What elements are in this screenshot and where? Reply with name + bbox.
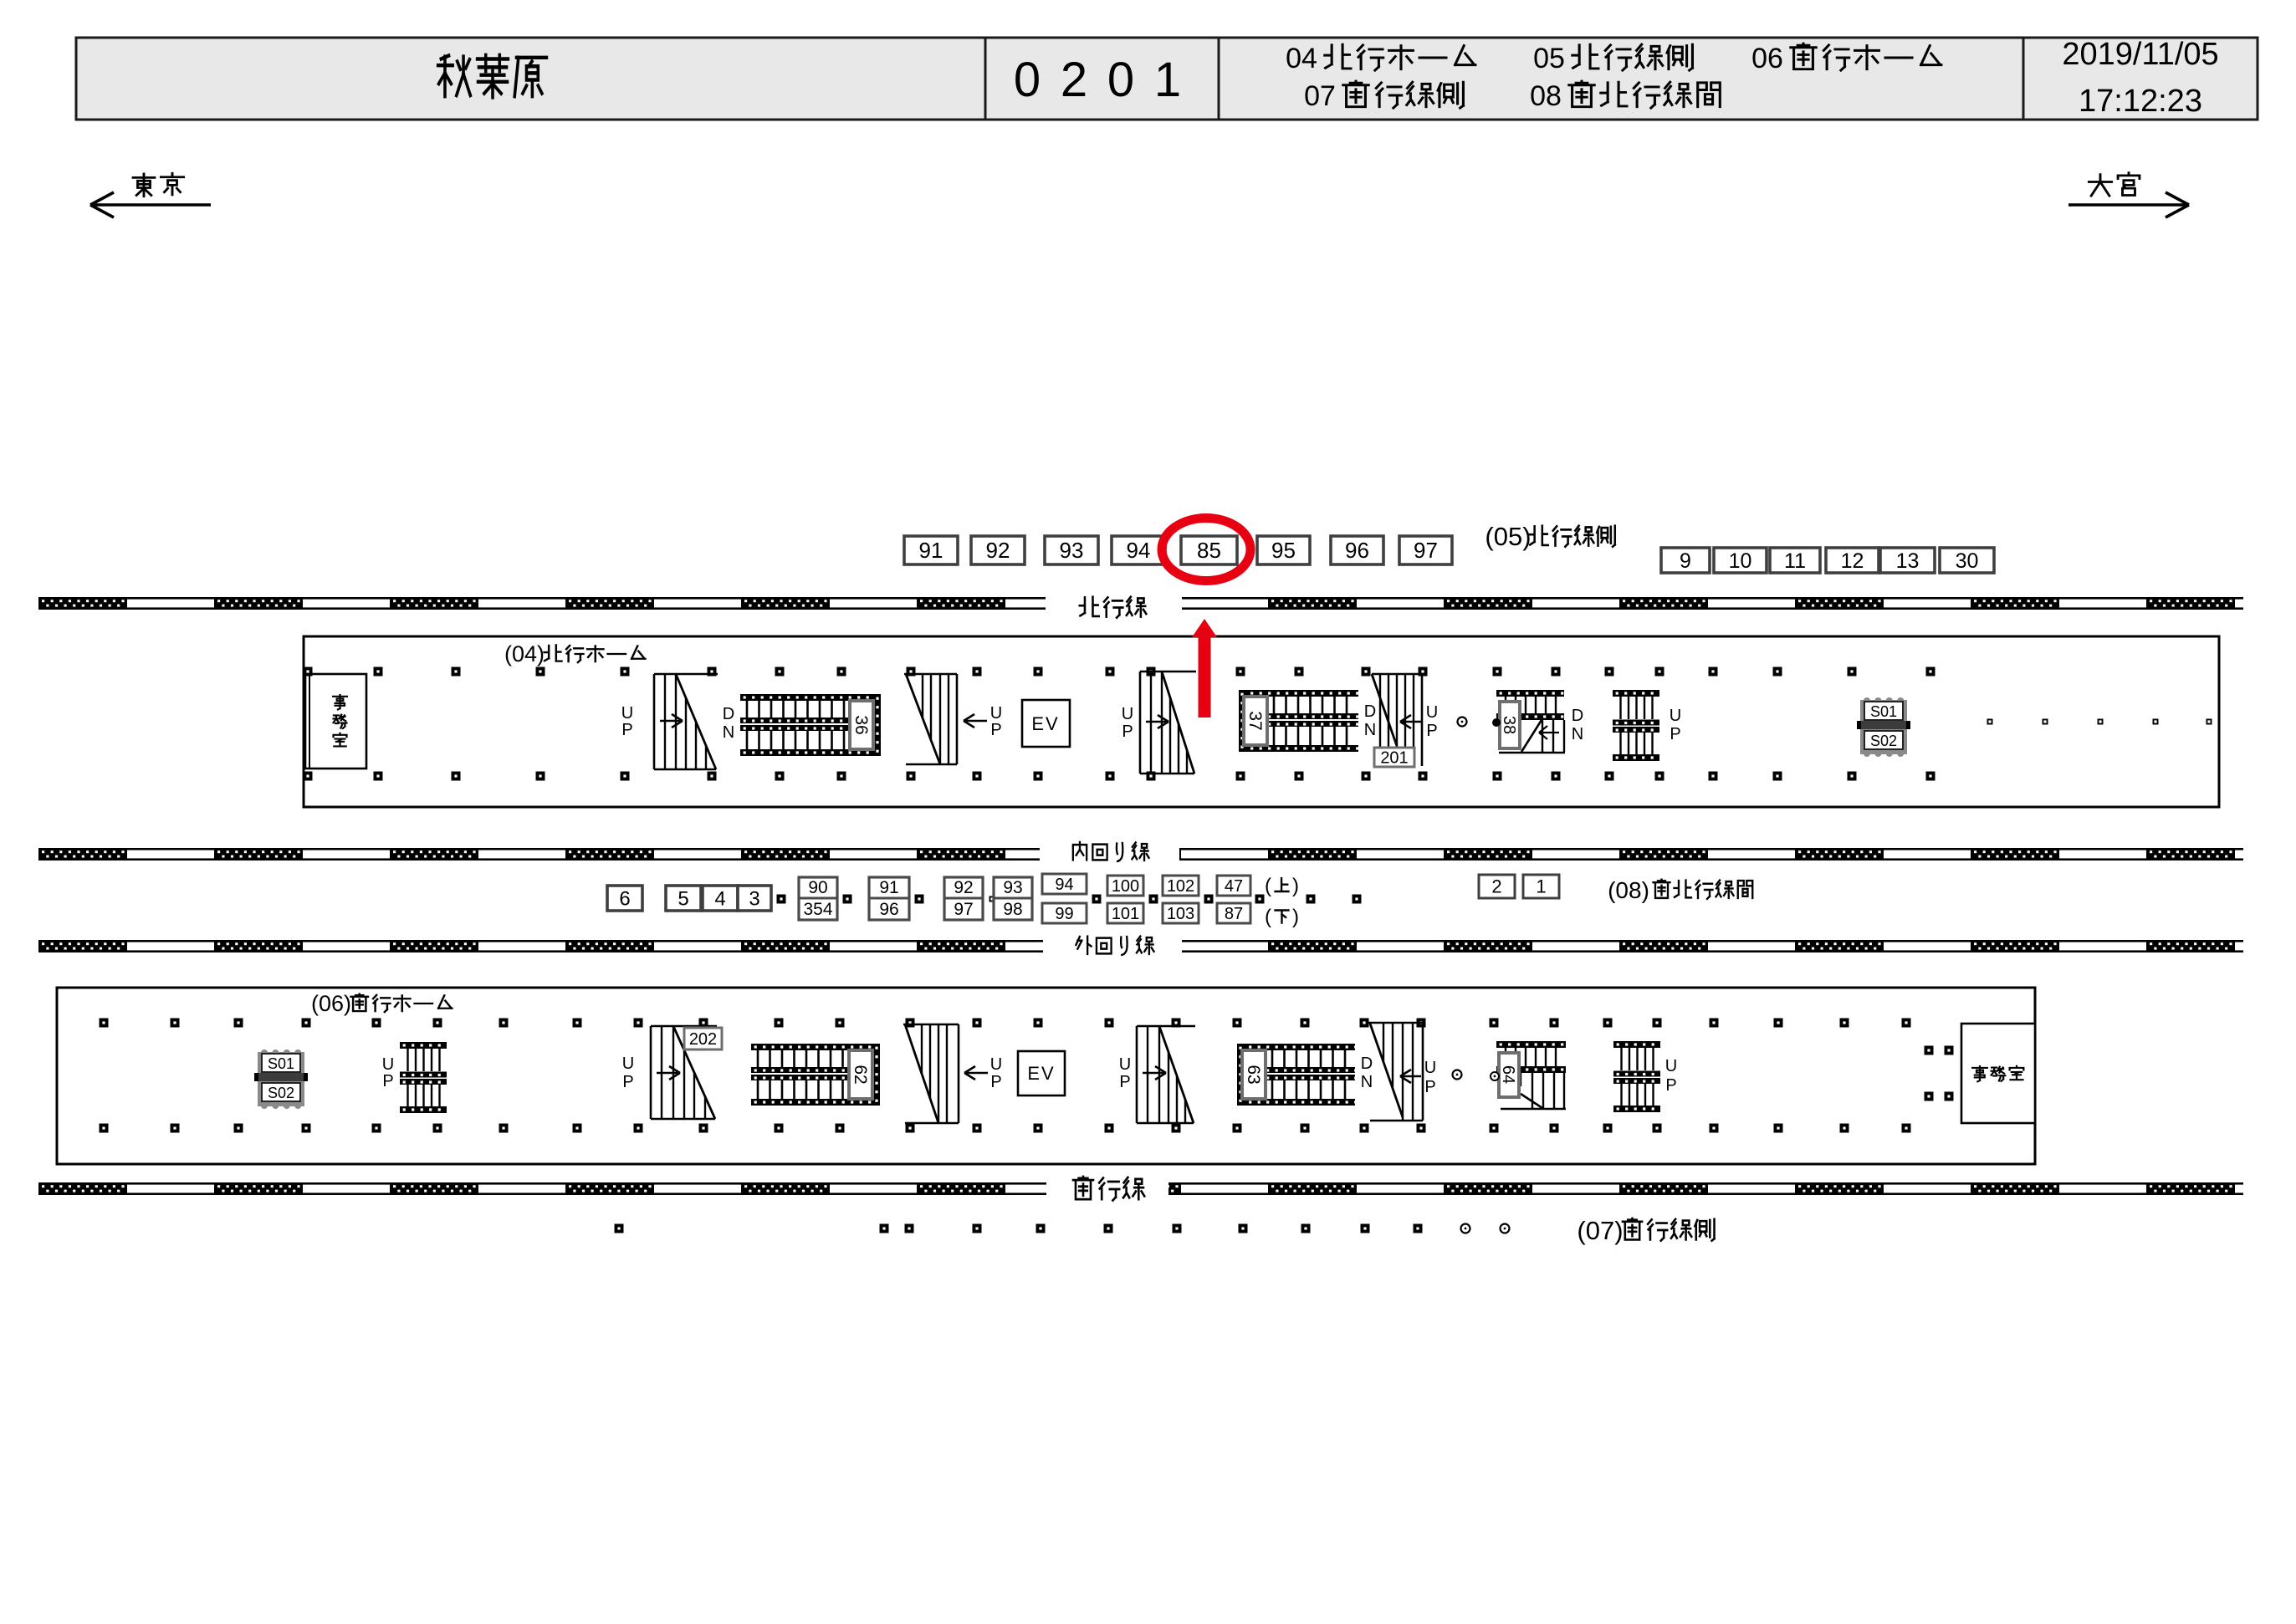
svg-text:07: 07: [1304, 80, 1336, 112]
svg-text:U: U: [1670, 707, 1681, 725]
svg-text:1: 1: [1154, 53, 1181, 107]
svg-text:): ): [1292, 906, 1299, 928]
svg-text:99: 99: [1055, 905, 1073, 923]
svg-text:6: 6: [619, 887, 630, 910]
svg-text:3: 3: [749, 887, 759, 910]
svg-text:(: (: [1265, 875, 1271, 897]
svg-text:06: 06: [1751, 43, 1783, 74]
svg-text:P: P: [1426, 722, 1437, 740]
svg-text:05: 05: [1533, 43, 1565, 74]
svg-text:(07): (07): [1577, 1216, 1623, 1245]
svg-text:(06): (06): [311, 991, 351, 1016]
svg-text:62: 62: [851, 1065, 870, 1084]
svg-text:U: U: [621, 704, 633, 723]
svg-text:EV: EV: [1027, 1063, 1055, 1084]
svg-text:9: 9: [1680, 549, 1691, 573]
svg-text:U: U: [1426, 703, 1438, 722]
svg-text:13: 13: [1896, 549, 1920, 573]
svg-text:2: 2: [1491, 876, 1501, 897]
svg-text:5: 5: [678, 887, 688, 910]
svg-text:U: U: [990, 704, 1002, 723]
svg-text:97: 97: [954, 900, 973, 919]
svg-text:D: D: [1364, 702, 1376, 721]
svg-text:S02: S02: [268, 1085, 294, 1101]
svg-text:2019/11/05: 2019/11/05: [2062, 37, 2218, 72]
svg-text:47: 47: [1225, 877, 1243, 896]
svg-text:P: P: [382, 1072, 393, 1090]
svg-text:P: P: [622, 1073, 633, 1091]
svg-text:0: 0: [1107, 53, 1134, 107]
svg-text:11: 11: [1784, 549, 1806, 573]
svg-text:202: 202: [689, 1030, 717, 1049]
svg-text:37: 37: [1245, 711, 1265, 730]
svg-text:P: P: [1424, 1078, 1435, 1096]
svg-text:(: (: [1265, 906, 1271, 928]
svg-text:P: P: [1119, 1073, 1130, 1091]
svg-text:91: 91: [879, 878, 898, 897]
svg-text:354: 354: [803, 900, 832, 919]
svg-text:(08): (08): [1608, 877, 1649, 903]
svg-text:12: 12: [1841, 549, 1864, 573]
svg-text:S01: S01: [1870, 703, 1897, 720]
svg-text:N: N: [1572, 725, 1583, 743]
svg-text:D: D: [1572, 707, 1583, 725]
svg-text:(04): (04): [504, 641, 545, 666]
svg-text:38: 38: [1500, 716, 1518, 734]
svg-text:N: N: [1361, 1073, 1373, 1091]
svg-text:87: 87: [1225, 905, 1243, 923]
svg-text:(05): (05): [1485, 522, 1531, 551]
svg-text:64: 64: [1499, 1065, 1517, 1084]
svg-text:P: P: [990, 1073, 1001, 1091]
svg-text:P: P: [1665, 1076, 1676, 1095]
svg-text:92: 92: [986, 538, 1010, 563]
svg-text:90: 90: [808, 878, 827, 897]
svg-text:D: D: [1361, 1055, 1373, 1073]
svg-text:85: 85: [1197, 538, 1221, 563]
svg-text:EV: EV: [1031, 713, 1059, 734]
svg-text:93: 93: [1003, 878, 1022, 897]
svg-text:04: 04: [1286, 43, 1317, 74]
svg-text:36: 36: [851, 715, 871, 734]
svg-text:N: N: [723, 723, 734, 742]
svg-text:30: 30: [1956, 549, 1979, 573]
svg-text:97: 97: [1414, 538, 1438, 563]
svg-text:S02: S02: [1870, 733, 1897, 749]
svg-text:17:12:23: 17:12:23: [2079, 84, 2202, 119]
svg-text:96: 96: [879, 900, 898, 919]
svg-text:100: 100: [1112, 877, 1139, 896]
svg-text:P: P: [621, 721, 632, 739]
svg-text:94: 94: [1127, 538, 1151, 563]
svg-text:95: 95: [1271, 538, 1296, 563]
svg-text:93: 93: [1060, 538, 1084, 563]
svg-text:63: 63: [1244, 1065, 1263, 1084]
svg-text:92: 92: [954, 878, 973, 897]
svg-text:1: 1: [1536, 876, 1546, 897]
svg-text:): ): [1292, 875, 1299, 897]
svg-text:4: 4: [714, 887, 725, 910]
svg-text:91: 91: [919, 538, 943, 563]
svg-text:103: 103: [1167, 905, 1194, 923]
svg-text:P: P: [1122, 723, 1133, 741]
svg-text:P: P: [990, 721, 1001, 739]
svg-text:10: 10: [1729, 549, 1752, 573]
svg-text:101: 101: [1112, 905, 1139, 923]
svg-text:U: U: [622, 1055, 634, 1073]
svg-text:98: 98: [1003, 900, 1022, 919]
svg-text:U: U: [1424, 1059, 1436, 1077]
svg-text:U: U: [1119, 1055, 1131, 1074]
svg-text:0: 0: [1014, 53, 1041, 107]
svg-text:U: U: [1122, 705, 1133, 723]
svg-text:U: U: [990, 1055, 1002, 1074]
svg-text:08: 08: [1530, 80, 1562, 112]
svg-text:2: 2: [1061, 53, 1087, 107]
svg-text:96: 96: [1345, 538, 1369, 563]
svg-text:U: U: [1665, 1057, 1677, 1075]
svg-text:N: N: [1364, 721, 1376, 739]
svg-text:S01: S01: [268, 1055, 294, 1072]
svg-text:94: 94: [1055, 876, 1073, 894]
svg-text:201: 201: [1380, 749, 1408, 768]
svg-text:P: P: [1670, 725, 1680, 743]
svg-text:U: U: [382, 1055, 394, 1074]
svg-text:102: 102: [1167, 877, 1194, 896]
svg-text:D: D: [723, 705, 734, 723]
